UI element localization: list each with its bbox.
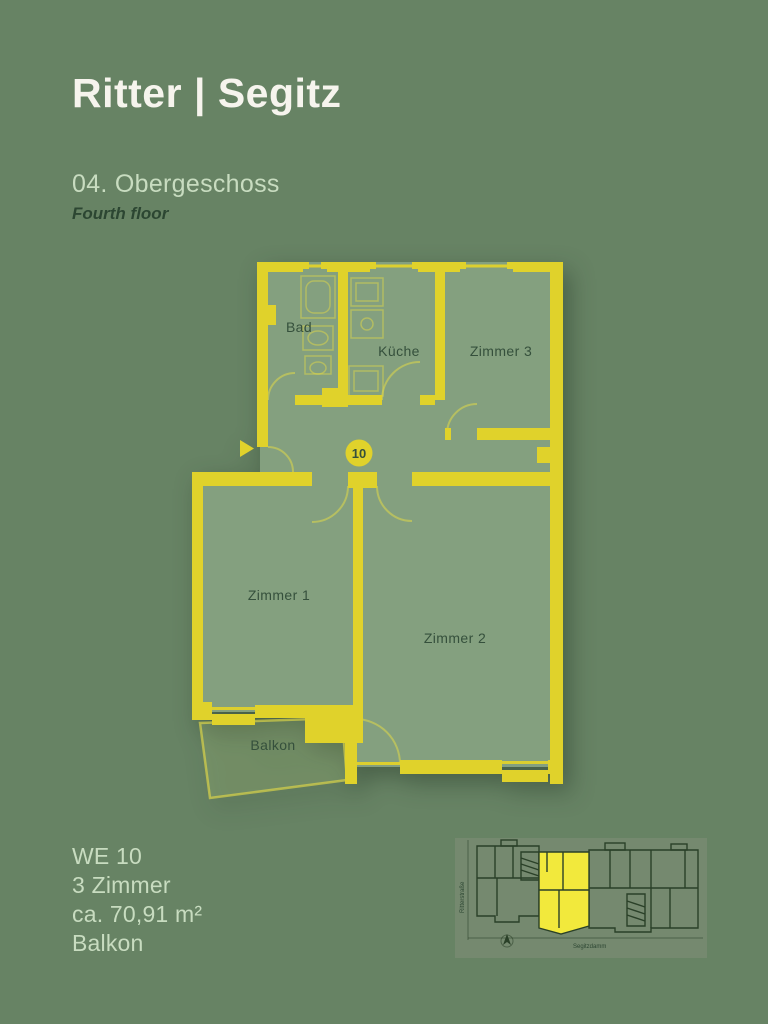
floor-subtitle: Fourth floor: [72, 204, 168, 224]
site-minimap: Segitzdamm Ritterstraße: [455, 838, 707, 958]
room-label-zimmer1: Zimmer 1: [248, 587, 310, 603]
unit-badge: 10: [346, 440, 373, 467]
unit-details: WE 10 3 Zimmer ca. 70,91 m² Balkon: [72, 842, 202, 958]
room-label-kueche: Küche: [378, 343, 420, 359]
unit-badge-number: 10: [352, 446, 366, 461]
detail-area: ca. 70,91 m²: [72, 900, 202, 929]
room-label-zimmer2: Zimmer 2: [424, 630, 486, 646]
detail-unit-number: WE 10: [72, 842, 202, 871]
brand-logo: Ritter | Segitz: [72, 70, 342, 117]
floorplan: 10 Bad Küche Zimmer 3 Zimmer 1 Zimmer 2 …: [185, 250, 585, 810]
detail-extra: Balkon: [72, 929, 202, 958]
flyer-page: { "colors": { "bg": "#678364", "wall": "…: [0, 0, 768, 1024]
room-label-balkon: Balkon: [250, 737, 295, 753]
street-label-bottom: Segitzdamm: [573, 944, 606, 950]
minimap-highlighted-unit: [539, 852, 589, 934]
floor-title: 04. Obergeschoss: [72, 170, 280, 199]
entrance-arrow-icon: [240, 440, 254, 457]
room-label-bad: Bad: [286, 319, 312, 335]
detail-room-count: 3 Zimmer: [72, 871, 202, 900]
room-label-zimmer3: Zimmer 3: [470, 343, 532, 359]
street-label-left: Ritterstraße: [460, 881, 466, 913]
